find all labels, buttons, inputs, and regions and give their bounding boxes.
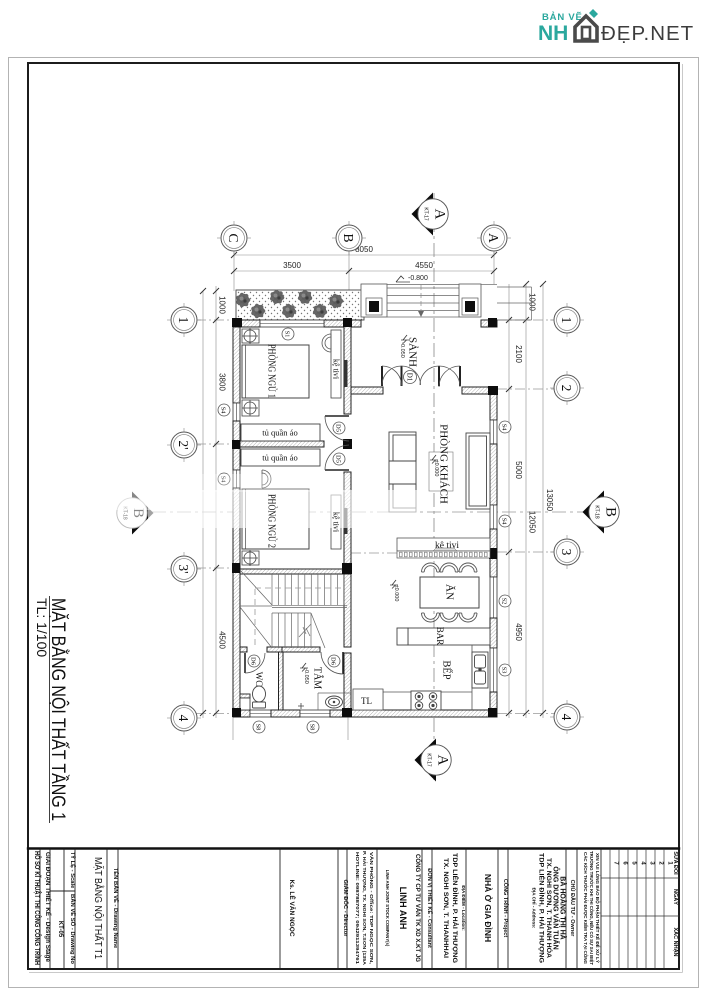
svg-text:BAR: BAR (435, 627, 445, 646)
svg-text:1: 1 (176, 317, 191, 324)
svg-text:1000: 1000 (218, 296, 227, 314)
svg-text:4: 4 (176, 715, 191, 722)
svg-text:XIN VUI LÒNG BÁO BỘ PHẬN THIẾT: XIN VUI LÒNG BÁO BỘ PHẬN THIẾT KẾ ĐỂ XỬ … (595, 853, 600, 963)
svg-text:TX. NGHI SƠN, T. THANHHAI: TX. NGHI SƠN, T. THANHHAI (442, 858, 449, 958)
svg-text:S4: S4 (501, 424, 508, 432)
svg-text:3800: 3800 (218, 373, 227, 391)
svg-text:ĂN: ĂN (443, 584, 455, 600)
svg-text:TỶ LỆ - Scale: TỶ LỆ - Scale (69, 852, 77, 890)
svg-text:MẶT BẰNG NỘI THẤT T1: MẶT BẰNG NỘI THẤT T1 (92, 857, 105, 959)
svg-text:TRƯỜNG TRƯỚC KHI THI CÔNG, NẾU: TRƯỜNG TRƯỚC KHI THI CÔNG, NẾU CÓ SỰ SAI… (589, 851, 594, 965)
svg-text:P. HẢI THƯỢNG, TX. NGHI SƠN, T: P. HẢI THƯỢNG, TX. NGHI SƠN, T.SƠN (135A (362, 851, 368, 966)
svg-text:kệ tivi: kệ tivi (331, 359, 340, 380)
svg-text:2: 2 (559, 385, 574, 392)
svg-text:-0.800: -0.800 (408, 275, 428, 282)
svg-text:SỬA ĐỔI: SỬA ĐỔI (672, 851, 679, 875)
svg-text:CÁC KÍCH THƯỚC PHẢI ĐƯỢC KIỂM: CÁC KÍCH THƯỚC PHẢI ĐƯỢC KIỂM TRA TẠI CÔ… (583, 852, 588, 965)
svg-text:3': 3' (176, 564, 191, 573)
svg-text:4950: 4950 (514, 623, 523, 641)
svg-text:4: 4 (640, 861, 646, 865)
svg-text:KT-17: KT-17 (426, 753, 432, 767)
svg-text:VĂN PHÒNG - Office: TDP NGỌC S: VĂN PHÒNG - Office: TDP NGỌC SƠN, (369, 852, 376, 964)
svg-text:4500: 4500 (218, 631, 227, 649)
svg-text:C: C (226, 233, 241, 242)
svg-text:1: 1 (559, 317, 574, 324)
svg-text:-0.050: -0.050 (303, 668, 309, 684)
svg-text:NGÀY: NGÀY (672, 889, 679, 905)
svg-text:B: B (603, 507, 619, 517)
svg-text:D6: D6 (330, 657, 337, 666)
svg-text:2: 2 (658, 861, 664, 865)
svg-text:±0.000: ±0.000 (393, 585, 399, 602)
svg-text:ĐƠN VỊ THIẾT KẾ - Consultant: ĐƠN VỊ THIẾT KẾ - Consultant (426, 868, 433, 948)
svg-text:Ks. LÊ VĂN NGỌC: Ks. LÊ VĂN NGỌC (288, 879, 297, 936)
svg-text:1: 1 (667, 861, 673, 865)
svg-text:5000: 5000 (514, 461, 523, 479)
svg-text:5: 5 (631, 861, 637, 865)
svg-text:TL: TL (361, 696, 372, 706)
svg-text:3: 3 (559, 549, 574, 556)
svg-text:2100: 2100 (514, 345, 523, 363)
svg-text:B: B (341, 233, 356, 242)
svg-text:KT-05: KT-05 (57, 921, 63, 938)
svg-text:PHÒNG KHÁCH: PHÒNG KHÁCH (437, 424, 449, 504)
svg-text:D6: D6 (250, 657, 257, 666)
svg-text:12050: 12050 (528, 511, 537, 534)
svg-text:2': 2' (176, 440, 191, 449)
svg-text:CÔNG TY CP TƯ VẤN TK XD X.KT J: CÔNG TY CP TƯ VẤN TK XD X.KT JG (414, 854, 424, 962)
svg-text:7: 7 (613, 861, 619, 865)
svg-text:BẾP: BẾP (440, 660, 453, 679)
svg-text:TL: 1/100: TL: 1/100 (34, 598, 50, 657)
svg-text:ĐỊA ĐIỂM - Location:: ĐỊA ĐIỂM - Location: (461, 885, 467, 931)
svg-text:6: 6 (622, 861, 628, 865)
svg-text:HỒ SƠ KĨ THUẬT THI CÔNG CÔNG T: HỒ SƠ KĨ THUẬT THI CÔNG CÔNG TRÌNH (33, 851, 43, 965)
svg-text:tủ quần áo: tủ quần áo (262, 428, 297, 438)
svg-text:S8: S8 (255, 724, 262, 731)
svg-text:LINH ANH: LINH ANH (398, 887, 408, 930)
svg-text:NHÀ Ở GIA ĐÌNH: NHÀ Ở GIA ĐÌNH (483, 874, 494, 942)
svg-text:WC: WC (254, 672, 264, 687)
svg-text:GIAI ĐOẠN THIẾT KẾ - Design St: GIAI ĐOẠN THIẾT KẾ - Design Stage (44, 852, 51, 963)
svg-text:4: 4 (559, 714, 574, 721)
svg-text:CÔNG TRÌNH - Project: CÔNG TRÌNH - Project (502, 879, 510, 938)
svg-text:KT-18: KT-18 (594, 505, 600, 519)
svg-text:PHÒNG NGỦ 1: PHÒNG NGỦ 1 (266, 344, 278, 398)
svg-text:TÊN BẢN VẼ - Drawing Name: TÊN BẢN VẼ - Drawing Name (112, 868, 120, 949)
svg-text:LINH ANH JOINT STOCK COMPANY(s: LINH ANH JOINT STOCK COMPANY(s) (385, 870, 390, 947)
svg-text:1000: 1000 (528, 293, 537, 311)
svg-text:D5: D5 (335, 424, 342, 432)
svg-text:XÁC NHẬN: XÁC NHẬN (672, 927, 679, 956)
svg-text:-0.050: -0.050 (399, 342, 405, 358)
svg-text:A: A (435, 755, 451, 766)
svg-text:S8: S8 (309, 724, 316, 731)
svg-text:ĐẸP.NET: ĐẸP.NET (601, 22, 694, 45)
svg-text:TDP LIÊN ĐÌNH, P. HẢI THƯỢNG: TDP LIÊN ĐÌNH, P. HẢI THƯỢNG (451, 853, 460, 963)
svg-text:A: A (432, 209, 448, 220)
svg-text:NH: NH (538, 22, 568, 45)
svg-text:S1: S1 (284, 331, 291, 338)
svg-text:HOTLINE: 0987887077; 094291139: HOTLINE: 0987887077; 0942911394761 (355, 852, 360, 965)
svg-text:tủ quần áo: tủ quần áo (262, 453, 297, 463)
svg-text:PHÒNG NGỦ 2: PHÒNG NGỦ 2 (266, 494, 278, 548)
svg-text:GIÁM ĐỐC - Director: GIÁM ĐỐC - Director (342, 879, 349, 937)
svg-text:A: A (486, 233, 501, 243)
svg-text:4550: 4550 (415, 261, 433, 270)
svg-text:D1: D1 (406, 373, 414, 382)
svg-text:S4: S4 (501, 518, 508, 526)
svg-text:BẢN VẼ SỐ - Drawing No: BẢN VẼ SỐ - Drawing No (69, 894, 76, 964)
svg-text:13050: 13050 (545, 489, 554, 512)
svg-text:3500: 3500 (283, 261, 301, 270)
svg-text:SẢNH: SẢNH (406, 337, 418, 367)
svg-text:BÀ HOÀNG THỊ HÀ: BÀ HOÀNG THỊ HÀ (559, 876, 568, 939)
svg-text:kệ tivi: kệ tivi (331, 512, 340, 533)
svg-text:S4: S4 (220, 407, 227, 415)
svg-text:3: 3 (649, 861, 655, 865)
svg-text:CHỦ ĐẦU TƯ - Owner: CHỦ ĐẦU TƯ - Owner (569, 880, 576, 938)
svg-text:ĐỊA CHỈ - Address:: ĐỊA CHỈ - Address: (532, 888, 538, 929)
svg-text:KT-17: KT-17 (423, 207, 429, 221)
svg-text:TẮM: TẮM (312, 667, 325, 689)
svg-text:D5: D5 (335, 455, 342, 463)
svg-text:S2: S2 (501, 598, 508, 605)
svg-text:S3: S3 (501, 667, 508, 674)
